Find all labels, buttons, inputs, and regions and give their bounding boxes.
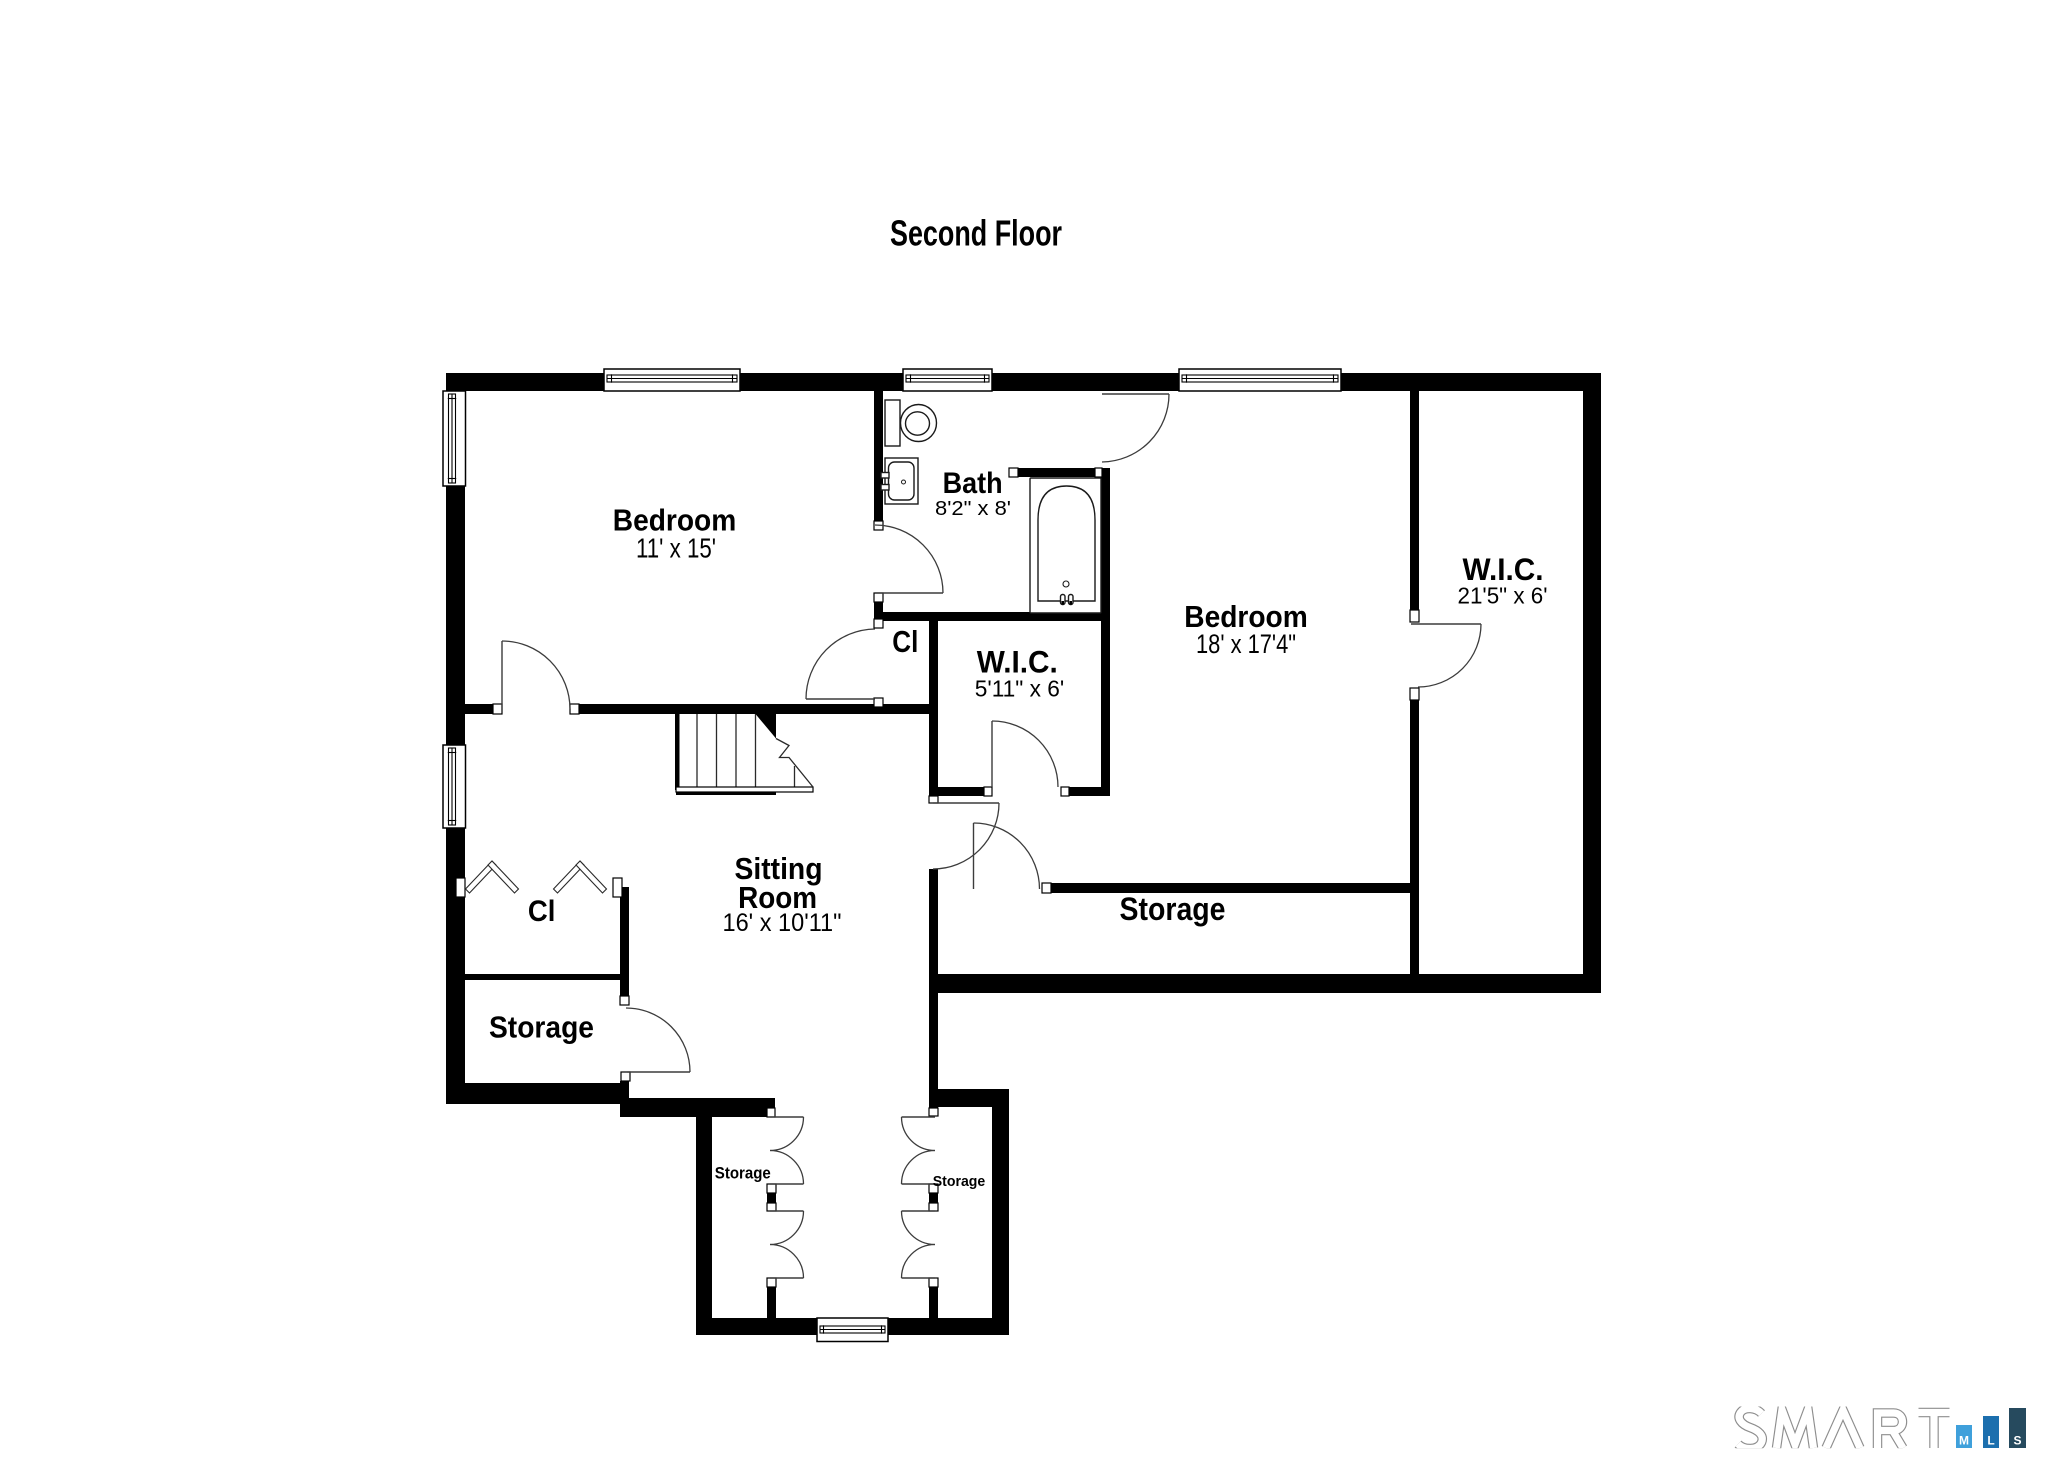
- svg-text:Cl: Cl: [528, 895, 556, 928]
- svg-text:Storage: Storage: [933, 1173, 986, 1190]
- svg-text:M: M: [1959, 1434, 1969, 1448]
- svg-text:S: S: [2013, 1434, 2021, 1448]
- svg-text:8'2" x 8': 8'2" x 8': [935, 498, 1011, 520]
- svg-text:5'11" x 6': 5'11" x 6': [975, 676, 1065, 702]
- svg-text:Storage: Storage: [715, 1165, 771, 1183]
- svg-text:18' x 17'4": 18' x 17'4": [1196, 629, 1296, 659]
- svg-text:W.I.C.: W.I.C.: [977, 644, 1058, 680]
- svg-text:L: L: [1987, 1434, 1994, 1448]
- svg-text:Storage: Storage: [489, 1010, 594, 1045]
- svg-text:21'5" x 6': 21'5" x 6': [1458, 583, 1548, 609]
- svg-text:Second Floor: Second Floor: [890, 212, 1062, 253]
- svg-text:11' x 15': 11' x 15': [636, 533, 716, 564]
- svg-text:Cl: Cl: [892, 625, 918, 659]
- svg-text:Storage: Storage: [1120, 891, 1226, 927]
- svg-text:16' x 10'11": 16' x 10'11": [723, 909, 842, 937]
- svg-text:Bath: Bath: [943, 467, 1003, 500]
